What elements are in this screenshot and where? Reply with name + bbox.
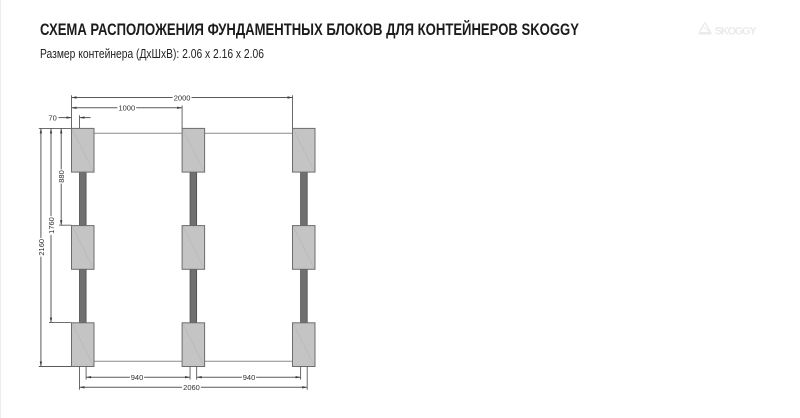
- svg-text:940: 940: [243, 373, 256, 382]
- svg-text:1000: 1000: [118, 104, 135, 113]
- svg-text:880: 880: [57, 170, 66, 183]
- svg-text:1760: 1760: [47, 217, 56, 234]
- svg-text:2060: 2060: [183, 383, 200, 392]
- svg-text:940: 940: [131, 373, 144, 382]
- svg-text:SKOGGY: SKOGGY: [715, 25, 758, 37]
- svg-text:2160: 2160: [37, 239, 46, 256]
- svg-text:70: 70: [48, 114, 56, 123]
- svg-text:2000: 2000: [174, 93, 191, 102]
